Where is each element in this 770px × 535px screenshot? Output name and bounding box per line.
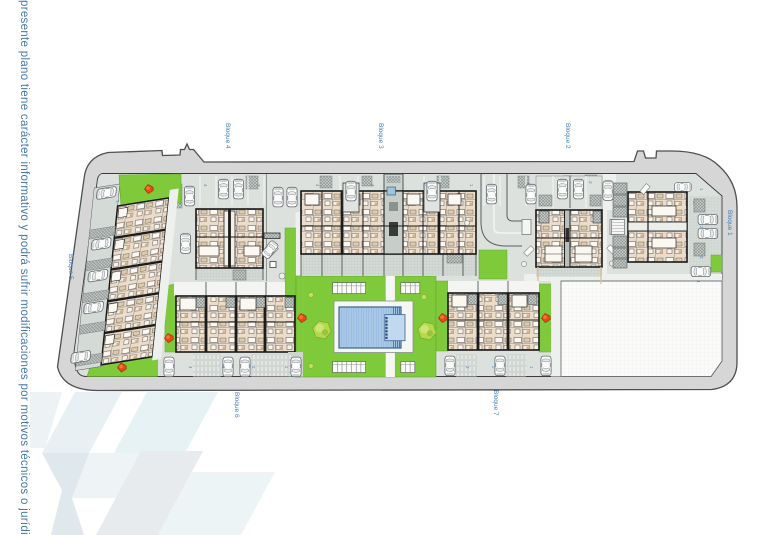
- svg-text:Bloque 4: Bloque 4: [224, 123, 231, 149]
- svg-text:Bloque 1: Bloque 1: [726, 210, 733, 236]
- svg-text:Bloque 7: Bloque 7: [492, 390, 499, 416]
- svg-text:Bloque 6: Bloque 6: [233, 392, 240, 418]
- svg-text:Bloque 5: Bloque 5: [67, 254, 74, 280]
- svg-text:Bloque 3: Bloque 3: [377, 123, 384, 149]
- svg-text:Bloque 2: Bloque 2: [564, 123, 571, 149]
